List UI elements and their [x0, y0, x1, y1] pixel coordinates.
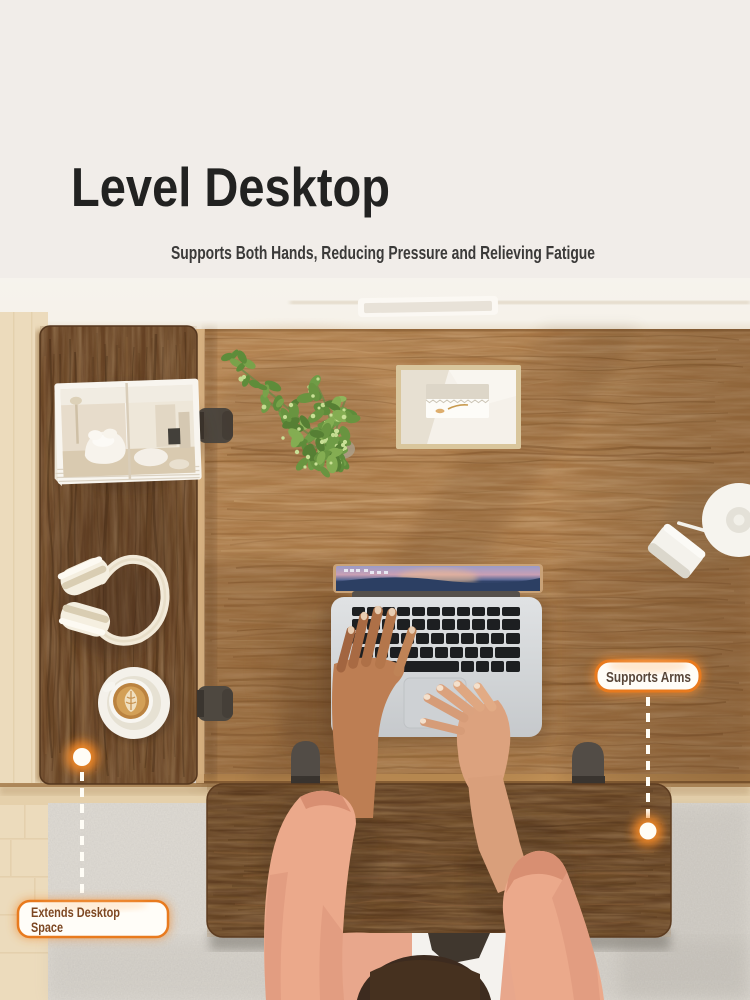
svg-text:Extends Desktop: Extends Desktop: [31, 905, 120, 920]
svg-text:Level Desktop: Level Desktop: [71, 156, 390, 218]
svg-text:Supports Arms: Supports Arms: [606, 670, 691, 686]
svg-text:Space: Space: [31, 920, 63, 935]
svg-text:Supports Both Hands, Reducing: Supports Both Hands, Reducing Pressure a…: [171, 243, 595, 263]
